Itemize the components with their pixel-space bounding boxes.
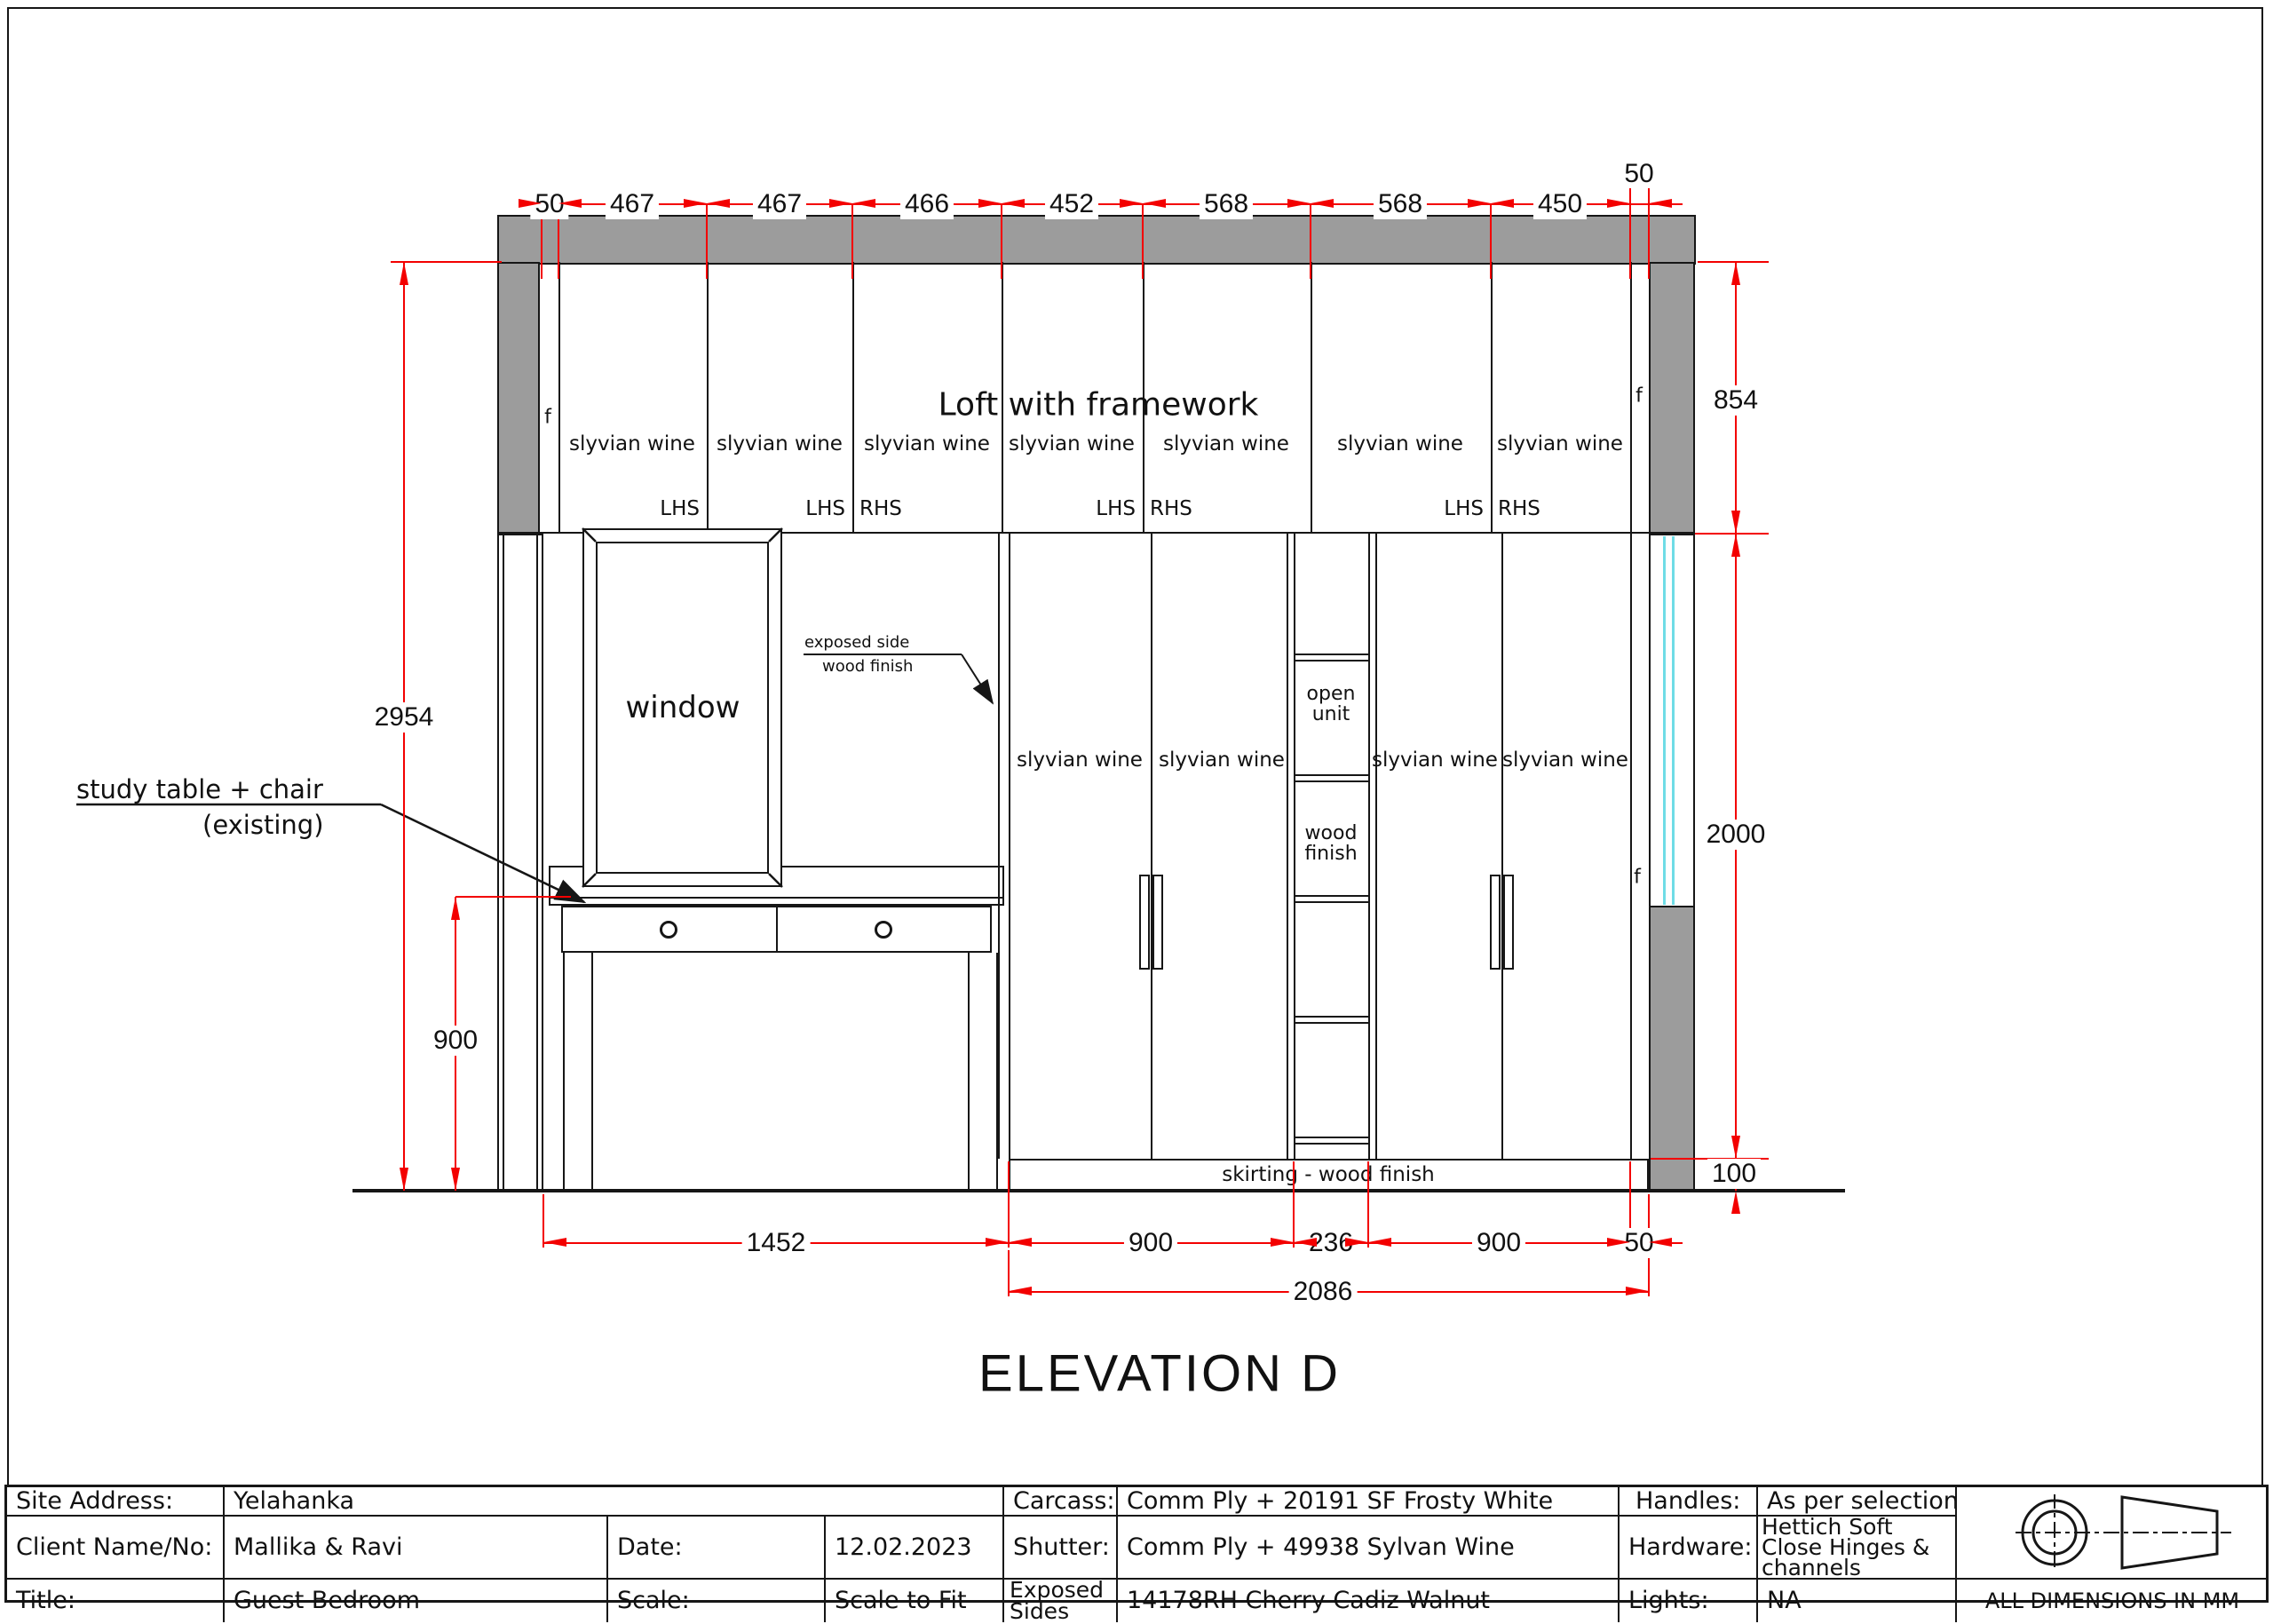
dim-arrow <box>1143 199 1166 208</box>
glass-line <box>1663 536 1666 905</box>
loft-divider <box>1311 262 1312 534</box>
loft-title: Loft with framework <box>939 387 1259 424</box>
dim-label: 467 <box>606 189 659 219</box>
hinge-label: LHS <box>620 497 700 520</box>
open-unit-shelf <box>1295 895 1368 903</box>
shutter-label: slyvian wine <box>1017 749 1143 772</box>
loft-divider <box>852 262 854 534</box>
shutter-divider <box>1501 534 1503 1159</box>
dim-arrow <box>1731 511 1740 534</box>
dim-arrow <box>1731 1191 1740 1214</box>
dim-arrow <box>1345 1238 1368 1247</box>
loft-filler-label: f <box>1635 385 1643 408</box>
wardrobe-side-line <box>1630 534 1632 1159</box>
drawer-divider <box>776 906 778 953</box>
dim-arrow <box>1607 199 1630 208</box>
dim-arrow <box>1731 534 1740 557</box>
dim-arrow <box>451 1168 460 1191</box>
exposed-sides-value: 14178RH Cherry Cadiz Walnut <box>1116 1578 1618 1622</box>
third-angle-projection-icon <box>1957 1494 2268 1571</box>
dim-arrow <box>978 199 1002 208</box>
table-leg-line <box>591 953 593 1191</box>
loft-filler-line <box>558 262 560 534</box>
table-leg-line <box>563 953 565 1191</box>
dim-arrow <box>986 1238 1009 1247</box>
dim-label: 467 <box>753 189 806 219</box>
study-table-annotation-line1: study table + chair <box>76 774 323 804</box>
carcass-value: Comm Ply + 20191 SF Frosty White <box>1116 1487 1618 1515</box>
dim-extension <box>706 203 708 279</box>
loft-panel-label: slyvian wine <box>864 432 990 456</box>
dim-arrow <box>1649 1238 1672 1247</box>
loft-panel-label: slyvian wine <box>1009 432 1135 456</box>
title-block: Site Address: Yelahanka Carcass: Comm Pl… <box>4 1485 2269 1603</box>
hinge-label: RHS <box>859 497 939 520</box>
floor-line <box>352 1189 1845 1192</box>
scale-label: Scale: <box>606 1578 824 1622</box>
elevation-drawing-page: { "drawing": { "title": "ELEVATION D", "… <box>0 0 2273 1606</box>
dim-label: 1452 <box>742 1228 811 1258</box>
dim-label: 568 <box>1200 189 1253 219</box>
dim-arrow <box>1649 199 1672 208</box>
right-pillar-bottom <box>1649 906 1695 1192</box>
drawer-knob <box>660 921 677 939</box>
open-unit-side-line <box>1294 534 1295 1159</box>
carcass-label: Carcass: <box>1002 1487 1116 1515</box>
dim-arrow <box>451 897 460 920</box>
dim-extension <box>1310 203 1311 279</box>
dim-arrow <box>1009 1287 1032 1295</box>
hinge-label: LHS <box>1056 497 1136 520</box>
dim-arrow <box>1294 1238 1317 1247</box>
lights-value: NA <box>1756 1578 1955 1622</box>
shutter-divider <box>1151 534 1152 1159</box>
scale-value: Scale to Fit <box>824 1578 1002 1622</box>
dim-extension <box>851 203 853 279</box>
hardware-label: Hardware: <box>1618 1515 1756 1578</box>
dim-extension <box>455 896 571 898</box>
shutter-finish-label: Shutter: <box>1002 1515 1116 1578</box>
left-pillar <box>497 262 540 534</box>
shutter-label: slyvian wine <box>1502 749 1628 772</box>
dim-label: 2000 <box>1702 820 1770 850</box>
dim-arrow <box>707 199 730 208</box>
dim-label: 2954 <box>370 702 439 733</box>
dim-label: 568 <box>1374 189 1427 219</box>
loft-filler-line <box>1630 262 1632 534</box>
site-address-label: Site Address: <box>7 1487 223 1515</box>
dim-arrow <box>684 199 707 208</box>
left-wall-inner-line <box>503 535 504 1190</box>
loft-divider <box>707 262 709 534</box>
left-wall-inner-line <box>536 535 538 1190</box>
dim-arrow <box>1009 1238 1032 1247</box>
dim-extension <box>1001 203 1002 279</box>
dim-label: 854 <box>1709 385 1762 416</box>
hinge-label: LHS <box>1404 497 1484 520</box>
loft-panel-label: slyvian wine <box>1337 432 1463 456</box>
dim-arrow <box>852 199 875 208</box>
hinge-label: RHS <box>1498 497 1578 520</box>
dim-arrow <box>1002 199 1025 208</box>
skirting-label: skirting - wood finish <box>1222 1163 1435 1186</box>
loft-filler-label: f <box>544 407 551 429</box>
open-unit-side-line <box>1368 534 1370 1159</box>
client-name-label: Client Name/No: <box>7 1515 223 1578</box>
open-unit-shelf <box>1295 654 1368 661</box>
drawer-knob <box>875 921 892 939</box>
wardrobe-side-line <box>998 534 1000 1159</box>
date-value: 12.02.2023 <box>824 1515 1002 1578</box>
handles-value: As per selection <box>1756 1487 1955 1515</box>
shutter-handle <box>1152 875 1163 970</box>
open-unit-shelf <box>1295 1016 1368 1024</box>
loft-panel-label: slyvian wine <box>569 432 695 456</box>
open-unit-side-line <box>1287 534 1288 1159</box>
dim-extension <box>1293 1161 1295 1248</box>
lights-label: Lights: <box>1618 1578 1756 1622</box>
hardware-value: Hettich Soft Close Hinges & channels <box>1756 1515 1955 1578</box>
dim-arrow <box>1287 199 1311 208</box>
loft-divider <box>1491 262 1493 534</box>
wardrobe-filler-label: f <box>1634 867 1641 889</box>
window-label: window <box>626 690 741 725</box>
open-unit-side-line <box>1375 534 1377 1159</box>
dim-arrow <box>543 1238 566 1247</box>
dim-arrow <box>1626 1287 1649 1295</box>
dim-label: 466 <box>900 189 954 219</box>
open-unit-shelf <box>1295 774 1368 782</box>
dim-arrow <box>829 199 852 208</box>
loft-top-band <box>497 215 1696 265</box>
loft-panel-label: slyvian wine <box>1163 432 1289 456</box>
dim-arrow <box>1607 1238 1630 1247</box>
date-label: Date: <box>606 1515 824 1578</box>
study-table-annotation-line2: (existing) <box>202 810 324 840</box>
dim-label: 100 <box>1707 1159 1761 1189</box>
dim-extension <box>1008 1161 1010 1248</box>
exposed-side-annotation-line1: exposed side <box>804 633 909 652</box>
dim-arrow <box>1120 199 1143 208</box>
dim-extension <box>1367 1161 1369 1248</box>
open-unit-label: open unit <box>1299 684 1363 725</box>
shutter-handle <box>1139 875 1150 970</box>
open-unit-finish-label: wood finish <box>1297 823 1365 864</box>
dim-label: 452 <box>1045 189 1098 219</box>
loft-panel-label: slyvian wine <box>717 432 843 456</box>
dim-label: 2086 <box>1289 1277 1358 1307</box>
dim-arrow <box>400 262 408 285</box>
exposed-side-annotation-line2: wood finish <box>822 657 913 676</box>
wardrobe-side-line <box>1009 534 1010 1159</box>
dim-label: 900 <box>1472 1228 1525 1258</box>
shutter-handle <box>1490 875 1501 970</box>
hinge-label: LHS <box>765 497 845 520</box>
dim-arrow <box>1731 1136 1740 1159</box>
dim-arrow <box>1368 1238 1391 1247</box>
dim-extension <box>1142 203 1144 279</box>
dimensions-note: ALL DIMENSIONS IN MM <box>1955 1578 2268 1622</box>
dim-label: 50 <box>1624 159 1653 189</box>
dim-label: 900 <box>1124 1228 1177 1258</box>
dim-arrow <box>519 199 542 208</box>
client-name-value: Mallika & Ravi <box>223 1515 606 1578</box>
shutter-finish-value: Comm Ply + 49938 Sylvan Wine <box>1116 1515 1618 1578</box>
dim-arrow <box>1468 199 1491 208</box>
site-address-value: Yelahanka <box>223 1487 1002 1515</box>
dim-arrow <box>400 1168 408 1191</box>
dim-arrow <box>1311 199 1334 208</box>
right-pillar-top <box>1649 262 1695 534</box>
title-value: Guest Bedroom <box>223 1578 606 1622</box>
dim-arrow <box>558 199 582 208</box>
table-top-edge-line <box>549 897 1004 899</box>
projection-symbol-cell <box>1955 1487 2268 1578</box>
loft-panel-label: slyvian wine <box>1497 432 1623 456</box>
title-label: Title: <box>7 1578 223 1622</box>
table-leg-line <box>968 953 970 1191</box>
open-unit-shelf <box>1295 1137 1368 1145</box>
glass-line <box>1672 536 1675 905</box>
exposed-sides-label: Exposed Sides <box>1002 1578 1116 1622</box>
shutter-handle <box>1503 875 1514 970</box>
dim-label: 900 <box>429 1026 482 1056</box>
elevation-title: ELEVATION D <box>978 1344 1341 1404</box>
dim-arrow <box>1731 262 1740 285</box>
dim-arrow <box>1271 1238 1294 1247</box>
shutter-label: slyvian wine <box>1159 749 1285 772</box>
shutter-label: slyvian wine <box>1372 749 1498 772</box>
dim-extension <box>1490 203 1492 279</box>
dim-arrow <box>1491 199 1514 208</box>
handles-label: Handles: <box>1618 1487 1756 1515</box>
hinge-label: RHS <box>1150 497 1230 520</box>
dim-label: 450 <box>1533 189 1587 219</box>
